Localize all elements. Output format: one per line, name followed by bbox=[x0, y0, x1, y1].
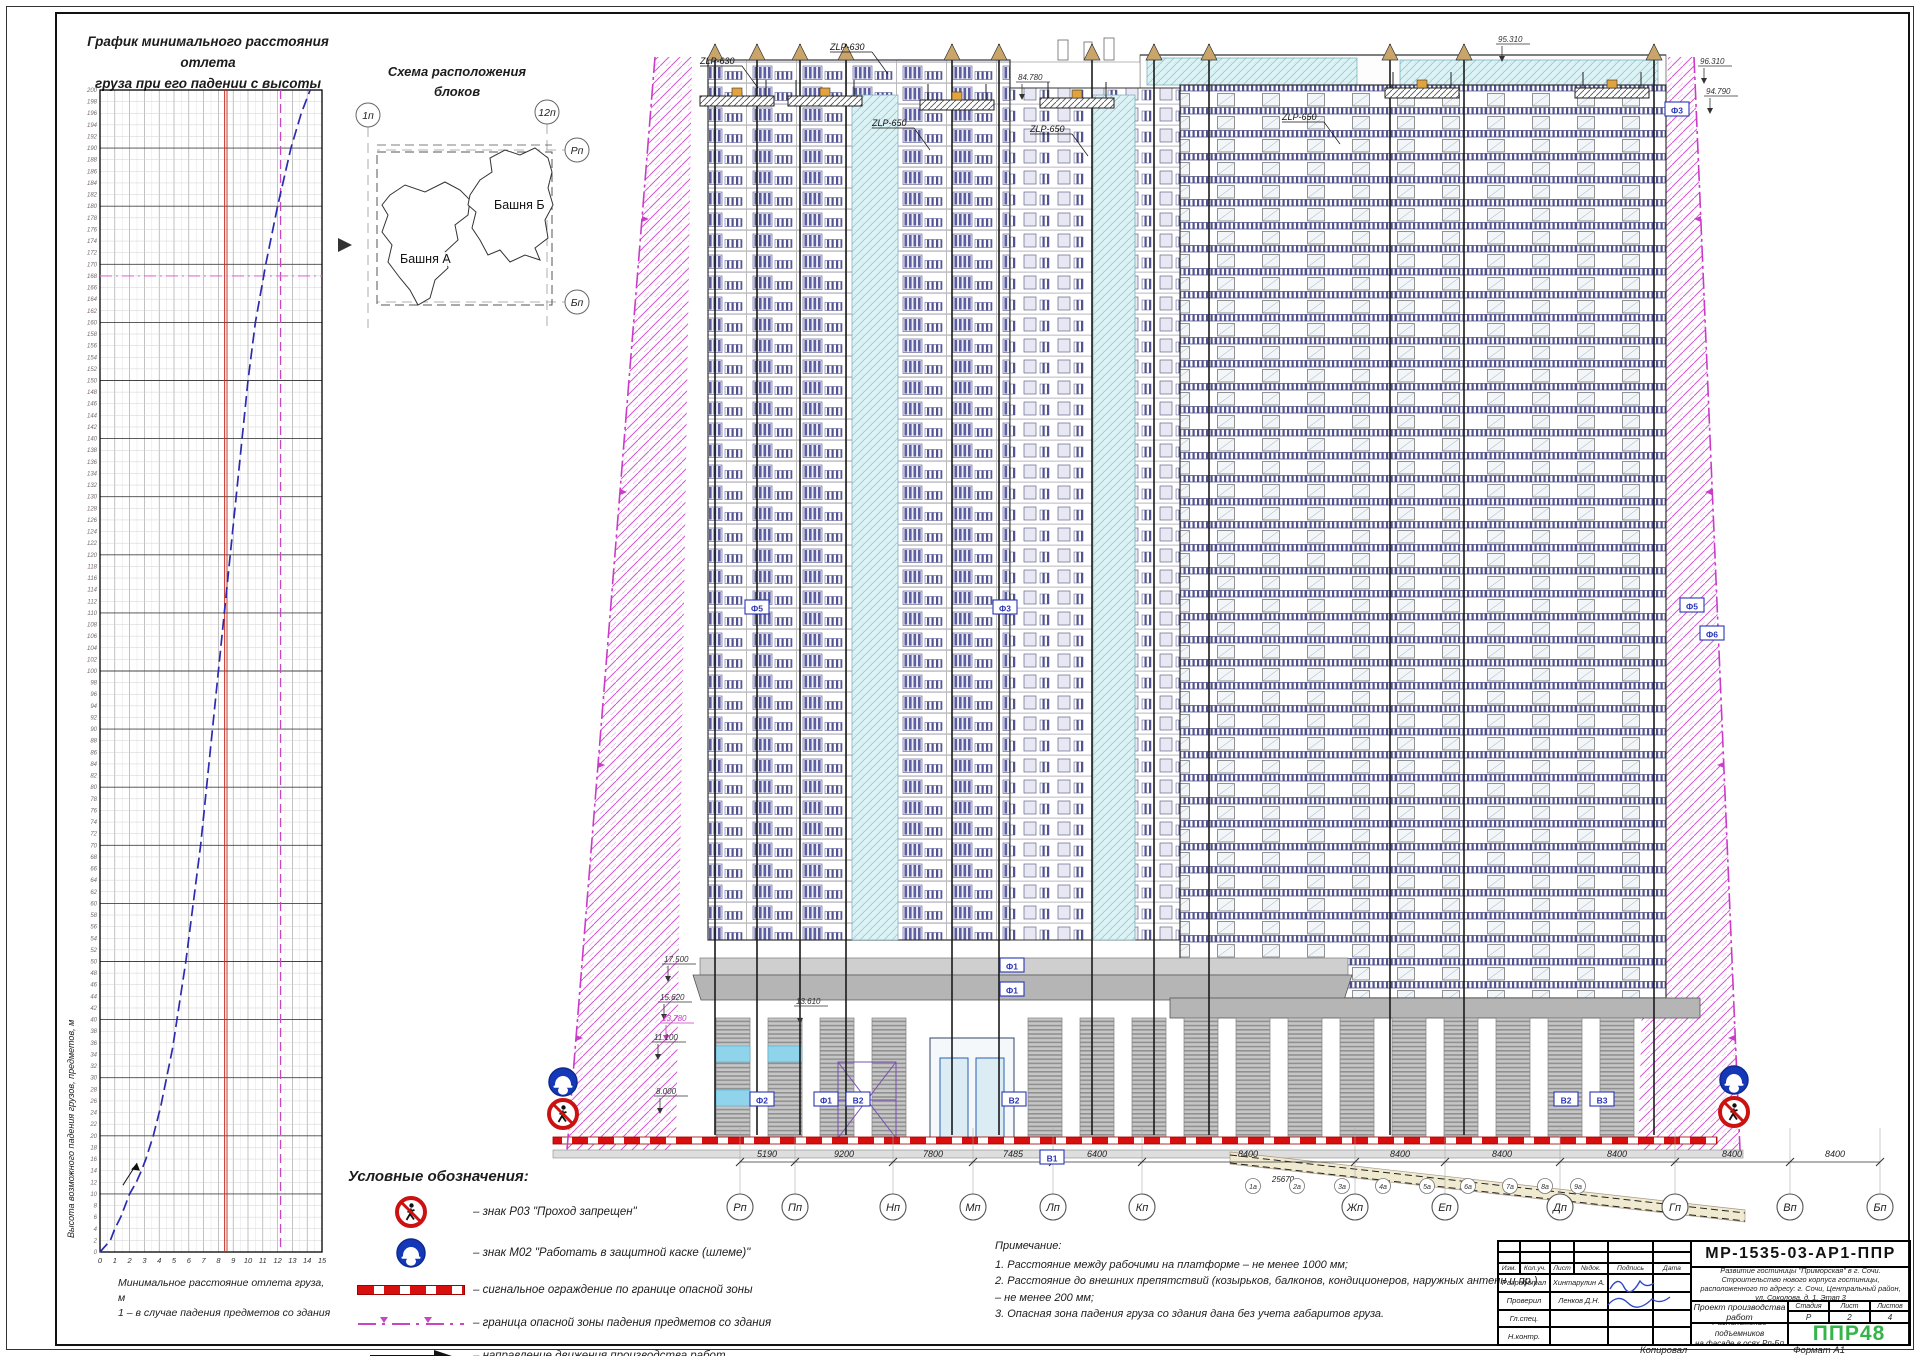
svg-text:Вп: Вп bbox=[1783, 1202, 1796, 1214]
direction-arrow-icon bbox=[348, 1350, 473, 1356]
svg-text:Ф1: Ф1 bbox=[1006, 962, 1018, 972]
svg-text:8400: 8400 bbox=[1607, 1149, 1627, 1159]
sheet-label: Лист bbox=[1829, 1301, 1870, 1311]
svg-text:В2: В2 bbox=[1009, 1096, 1020, 1106]
note-3: 3. Опасная зона падения груза со здания … bbox=[995, 1306, 1540, 1323]
svg-text:114: 114 bbox=[87, 588, 97, 594]
svg-text:Ф1: Ф1 bbox=[1006, 986, 1018, 996]
svg-text:7485: 7485 bbox=[1003, 1149, 1024, 1159]
svg-text:168: 168 bbox=[87, 274, 98, 280]
titleblock-cell bbox=[1653, 1241, 1691, 1252]
svg-text:80: 80 bbox=[90, 785, 97, 791]
svg-text:54: 54 bbox=[90, 936, 97, 942]
svg-text:92: 92 bbox=[90, 715, 97, 721]
scheme-axis-12p: 12п bbox=[538, 107, 556, 119]
svg-text:Мп: Мп bbox=[965, 1202, 980, 1214]
titleblock-cell bbox=[1608, 1327, 1653, 1345]
sheets-label: Листов bbox=[1870, 1301, 1910, 1311]
scheme-axis-1p: 1п bbox=[362, 110, 374, 122]
svg-text:30: 30 bbox=[90, 1076, 97, 1082]
svg-text:Ф3: Ф3 bbox=[1671, 106, 1683, 116]
svg-text:104: 104 bbox=[87, 646, 98, 652]
svg-text:5а: 5а bbox=[1423, 1184, 1431, 1191]
svg-text:124: 124 bbox=[87, 530, 98, 536]
svg-text:50: 50 bbox=[90, 960, 97, 966]
titleblock-cell bbox=[1608, 1241, 1653, 1252]
svg-text:96.310: 96.310 bbox=[1700, 57, 1725, 66]
svg-text:В2: В2 bbox=[853, 1096, 864, 1106]
svg-text:56: 56 bbox=[90, 925, 97, 931]
svg-text:116: 116 bbox=[87, 576, 97, 582]
svg-text:136: 136 bbox=[87, 460, 98, 466]
svg-text:4: 4 bbox=[94, 1227, 98, 1233]
fall-distance-chart: 0246810121416182022242628303234363840424… bbox=[60, 78, 340, 1278]
hard-hat-sign-icon bbox=[348, 1236, 473, 1270]
svg-text:6: 6 bbox=[94, 1215, 98, 1221]
danger-boundary-icon bbox=[348, 1317, 473, 1329]
svg-text:5190: 5190 bbox=[757, 1149, 777, 1159]
svg-text:142: 142 bbox=[87, 425, 98, 431]
svg-text:70: 70 bbox=[90, 843, 97, 849]
svg-text:8400: 8400 bbox=[1238, 1149, 1258, 1159]
svg-text:ZLP-650: ZLP-650 bbox=[871, 118, 907, 128]
svg-text:170: 170 bbox=[87, 262, 98, 268]
svg-text:2а: 2а bbox=[1292, 1184, 1301, 1191]
sheet-subject: Расположение подъемниковна фасаде в осях… bbox=[1691, 1323, 1788, 1345]
svg-text:100: 100 bbox=[87, 669, 98, 675]
titleblock-cell bbox=[1653, 1252, 1691, 1263]
no-pedestrian-sign-icon bbox=[348, 1195, 473, 1229]
chart-x-axis-caption: Минимальное расстояние отлета груза, м 1… bbox=[118, 1276, 333, 1322]
svg-text:46: 46 bbox=[90, 983, 97, 989]
svg-text:200: 200 bbox=[86, 88, 98, 94]
svg-text:184: 184 bbox=[87, 181, 98, 187]
note-1: 1. Расстояние между рабочими на платформ… bbox=[995, 1257, 1540, 1274]
no-pedestrian-sign bbox=[1720, 1098, 1748, 1126]
notes: Примечание: 1. Расстояние между рабочими… bbox=[995, 1238, 1540, 1323]
svg-text:140: 140 bbox=[87, 437, 98, 443]
svg-text:7: 7 bbox=[202, 1256, 207, 1265]
svg-text:ZLP-630: ZLP-630 bbox=[699, 56, 735, 66]
svg-text:90: 90 bbox=[90, 727, 97, 733]
svg-text:6: 6 bbox=[187, 1256, 192, 1265]
titleblock-cell bbox=[1520, 1252, 1550, 1263]
svg-text:Дп: Дп bbox=[1551, 1202, 1567, 1214]
copied-by-label: Копировал bbox=[1640, 1345, 1687, 1356]
svg-text:Гп: Гп bbox=[1669, 1202, 1681, 1214]
titleblock-cell bbox=[1574, 1241, 1608, 1252]
svg-text:152: 152 bbox=[87, 367, 98, 373]
svg-text:3а: 3а bbox=[1338, 1184, 1346, 1191]
svg-text:88: 88 bbox=[90, 739, 97, 745]
svg-text:154: 154 bbox=[87, 355, 98, 361]
titleblock-cell: Н.контр. bbox=[1498, 1327, 1550, 1345]
svg-text:194: 194 bbox=[87, 123, 98, 129]
titleblock-cell: Подпись bbox=[1608, 1263, 1653, 1274]
svg-text:В2: В2 bbox=[1561, 1096, 1572, 1106]
format-label: Формат А1 bbox=[1793, 1345, 1845, 1356]
svg-text:Ф5: Ф5 bbox=[751, 604, 763, 614]
svg-text:84.780: 84.780 bbox=[1018, 73, 1043, 82]
svg-text:58: 58 bbox=[90, 913, 97, 919]
scheme-axis-bp: Бп bbox=[571, 297, 584, 309]
titleblock-cell: №док. bbox=[1574, 1263, 1608, 1274]
svg-text:8400: 8400 bbox=[1722, 1149, 1742, 1159]
svg-text:144: 144 bbox=[87, 413, 98, 419]
legend-item-p03: – знак Р03 "Проход запрещен" bbox=[348, 1195, 818, 1229]
titleblock-cell bbox=[1653, 1274, 1691, 1292]
svg-text:118: 118 bbox=[87, 564, 97, 570]
svg-text:150: 150 bbox=[87, 379, 98, 385]
svg-text:2: 2 bbox=[127, 1256, 133, 1265]
svg-text:7800: 7800 bbox=[923, 1149, 943, 1159]
svg-text:22: 22 bbox=[89, 1122, 97, 1128]
svg-text:Еп: Еп bbox=[1438, 1202, 1451, 1214]
svg-text:12: 12 bbox=[90, 1180, 97, 1186]
svg-text:В3: В3 bbox=[1597, 1096, 1608, 1106]
svg-text:8: 8 bbox=[216, 1256, 221, 1265]
svg-text:6а: 6а bbox=[1464, 1184, 1472, 1191]
svg-text:106: 106 bbox=[87, 634, 98, 640]
titleblock-cell: Гл.спец. bbox=[1498, 1310, 1550, 1328]
svg-text:Лп: Лп bbox=[1045, 1202, 1060, 1214]
svg-text:128: 128 bbox=[87, 506, 98, 512]
svg-text:5: 5 bbox=[172, 1256, 177, 1265]
svg-text:Нп: Нп bbox=[886, 1202, 900, 1214]
svg-text:162: 162 bbox=[87, 309, 98, 315]
titleblock-cell: Проверил bbox=[1498, 1292, 1550, 1310]
hard-hat-sign bbox=[1720, 1066, 1748, 1094]
svg-text:126: 126 bbox=[87, 518, 98, 524]
signal-fence-line bbox=[553, 1137, 1717, 1144]
svg-text:38: 38 bbox=[90, 1029, 97, 1035]
tower-a-label: Башня А bbox=[398, 252, 453, 266]
company-logo: ППР48 bbox=[1788, 1323, 1910, 1345]
titleblock-cell bbox=[1608, 1310, 1653, 1328]
svg-text:10: 10 bbox=[90, 1192, 97, 1198]
svg-text:36: 36 bbox=[90, 1041, 97, 1047]
svg-text:196: 196 bbox=[87, 111, 98, 117]
document-title: Проект производства работ bbox=[1691, 1301, 1788, 1323]
svg-text:158: 158 bbox=[87, 332, 98, 338]
svg-text:16: 16 bbox=[90, 1157, 97, 1163]
svg-text:182: 182 bbox=[87, 193, 98, 199]
svg-text:13: 13 bbox=[288, 1256, 297, 1265]
title-block: МР-1535-03-АР1-ППР Развитие гостиницы "П… bbox=[1497, 1240, 1911, 1346]
svg-text:64: 64 bbox=[90, 878, 97, 884]
svg-text:166: 166 bbox=[87, 286, 98, 292]
note-2: 2. Расстояние до внешних препятствий (ко… bbox=[995, 1273, 1540, 1306]
svg-text:18: 18 bbox=[90, 1145, 97, 1151]
titleblock-cell bbox=[1574, 1252, 1608, 1263]
svg-text:186: 186 bbox=[87, 169, 98, 175]
titleblock-cell: Хинтарулин А. bbox=[1550, 1274, 1608, 1292]
svg-text:122: 122 bbox=[87, 541, 98, 547]
project-description: Развитие гостиницы "Приморская" в г. Соч… bbox=[1691, 1267, 1910, 1301]
svg-text:84: 84 bbox=[90, 762, 97, 768]
svg-text:164: 164 bbox=[87, 297, 98, 303]
svg-text:48: 48 bbox=[90, 971, 97, 977]
tower-a-outline bbox=[382, 182, 470, 305]
svg-text:146: 146 bbox=[87, 402, 98, 408]
titleblock-cell: Кол.уч. bbox=[1520, 1263, 1550, 1274]
svg-text:8400: 8400 bbox=[1492, 1149, 1512, 1159]
legend-item-m02: – знак М02 "Работать в защитной каске (ш… bbox=[348, 1236, 818, 1270]
svg-text:6400: 6400 bbox=[1087, 1149, 1107, 1159]
svg-text:34: 34 bbox=[90, 1052, 97, 1058]
legend: Условные обозначения: – знак Р03 "Проход… bbox=[348, 1168, 818, 1356]
svg-text:В1: В1 bbox=[1047, 1154, 1058, 1164]
stage-label: Стадия bbox=[1788, 1301, 1829, 1311]
scheme-axis-rp: Рп bbox=[571, 145, 584, 157]
no-pedestrian-sign bbox=[549, 1100, 577, 1128]
tower-b-label: Башня Б bbox=[492, 198, 547, 212]
svg-text:ZLP-650: ZLP-650 bbox=[1029, 124, 1065, 134]
titleblock-cell: Ленков Д.Н. bbox=[1550, 1292, 1608, 1310]
svg-text:188: 188 bbox=[87, 158, 98, 164]
svg-text:Ф2: Ф2 bbox=[756, 1096, 768, 1106]
svg-text:138: 138 bbox=[87, 448, 98, 454]
svg-text:4а: 4а bbox=[1379, 1184, 1387, 1191]
view-direction-arrow bbox=[338, 238, 352, 252]
titleblock-cell bbox=[1550, 1310, 1608, 1328]
svg-text:24: 24 bbox=[89, 1111, 97, 1117]
svg-text:Ф6: Ф6 bbox=[1706, 630, 1718, 640]
svg-text:134: 134 bbox=[87, 471, 98, 477]
svg-text:7а: 7а bbox=[1506, 1184, 1514, 1191]
signal-fence-icon bbox=[348, 1285, 473, 1295]
titleblock-cell: Изм. bbox=[1498, 1263, 1520, 1274]
svg-text:26: 26 bbox=[89, 1099, 97, 1105]
svg-text:20: 20 bbox=[89, 1134, 97, 1140]
svg-text:8400: 8400 bbox=[1390, 1149, 1410, 1159]
titleblock-cell bbox=[1653, 1310, 1691, 1328]
svg-text:130: 130 bbox=[87, 495, 98, 501]
svg-text:17.500: 17.500 bbox=[664, 955, 689, 964]
svg-text:9: 9 bbox=[231, 1256, 236, 1265]
svg-text:1: 1 bbox=[113, 1256, 117, 1265]
svg-text:94: 94 bbox=[90, 704, 97, 710]
svg-text:ZLP-650: ZLP-650 bbox=[1281, 112, 1317, 122]
block-layout-scheme: 1п 12п Рп Бп bbox=[332, 88, 602, 378]
svg-text:32: 32 bbox=[90, 1064, 97, 1070]
svg-text:110: 110 bbox=[87, 611, 97, 617]
hard-hat-sign bbox=[549, 1068, 577, 1096]
svg-text:148: 148 bbox=[87, 390, 98, 396]
sheet-value: 2 bbox=[1829, 1311, 1870, 1323]
titleblock-cell bbox=[1550, 1327, 1608, 1345]
legend-item-direction: – направление движения производства рабо… bbox=[348, 1343, 818, 1356]
svg-text:156: 156 bbox=[87, 344, 98, 350]
svg-text:8а: 8а bbox=[1541, 1184, 1549, 1191]
titleblock-cell bbox=[1653, 1327, 1691, 1345]
svg-text:Ф3: Ф3 bbox=[999, 604, 1011, 614]
svg-text:8: 8 bbox=[94, 1204, 98, 1210]
svg-text:190: 190 bbox=[87, 146, 98, 152]
svg-text:98: 98 bbox=[90, 681, 97, 687]
svg-text:68: 68 bbox=[90, 855, 97, 861]
svg-text:44: 44 bbox=[90, 994, 97, 1000]
titleblock-cell: Лист bbox=[1550, 1263, 1574, 1274]
titleblock-cell: Дата bbox=[1653, 1263, 1691, 1274]
titleblock-cell bbox=[1550, 1252, 1574, 1263]
svg-text:10: 10 bbox=[244, 1256, 253, 1265]
legend-item-boundary: – граница опасной зоны падения предметов… bbox=[348, 1310, 818, 1336]
legend-item-fence: – сигнальное ограждение по границе опасн… bbox=[348, 1277, 818, 1303]
svg-text:13.780: 13.780 bbox=[662, 1014, 687, 1023]
document-code: МР-1535-03-АР1-ППР bbox=[1691, 1241, 1910, 1267]
svg-text:60: 60 bbox=[90, 901, 97, 907]
chart-y-axis-label: Высота возможного падения грузов, предме… bbox=[66, 838, 76, 1238]
svg-text:66: 66 bbox=[90, 867, 97, 873]
svg-text:62: 62 bbox=[90, 890, 97, 896]
svg-text:Кп: Кп bbox=[1136, 1202, 1149, 1214]
svg-text:14: 14 bbox=[303, 1256, 311, 1265]
svg-text:52: 52 bbox=[90, 948, 97, 954]
svg-text:ZLP-630: ZLP-630 bbox=[829, 42, 865, 52]
titleblock-cell bbox=[1608, 1292, 1653, 1310]
titleblock-cell: Разработал bbox=[1498, 1274, 1550, 1292]
titleblock-cell bbox=[1653, 1292, 1691, 1310]
titleblock-cell bbox=[1520, 1241, 1550, 1252]
legend-heading: Условные обозначения: bbox=[348, 1168, 818, 1185]
svg-text:112: 112 bbox=[87, 599, 97, 605]
svg-text:78: 78 bbox=[90, 797, 97, 803]
svg-text:72: 72 bbox=[90, 832, 97, 838]
svg-text:76: 76 bbox=[90, 808, 97, 814]
svg-text:86: 86 bbox=[90, 750, 97, 756]
titleblock-cell bbox=[1550, 1241, 1574, 1252]
svg-text:Ф5: Ф5 bbox=[1686, 602, 1698, 612]
svg-text:132: 132 bbox=[87, 483, 98, 489]
drawing-sheet: ZLP-630ZLP-630ZLP-650ZLP-650ZLP-650РпПпН… bbox=[0, 0, 1920, 1356]
svg-text:12: 12 bbox=[273, 1256, 282, 1265]
notes-heading: Примечание: bbox=[995, 1238, 1540, 1255]
svg-text:Жп: Жп bbox=[1346, 1202, 1363, 1214]
svg-text:95.310: 95.310 bbox=[1498, 35, 1523, 44]
svg-text:15.620: 15.620 bbox=[660, 993, 685, 1002]
svg-text:160: 160 bbox=[87, 320, 98, 326]
chart-series-note: 1 – в случае падения предметов со здания bbox=[118, 1306, 333, 1321]
svg-text:3: 3 bbox=[142, 1256, 147, 1265]
chart-x-axis-label: Минимальное расстояние отлета груза, м bbox=[118, 1276, 333, 1306]
svg-text:0: 0 bbox=[98, 1256, 103, 1265]
svg-text:4: 4 bbox=[157, 1256, 161, 1265]
svg-text:9200: 9200 bbox=[834, 1149, 854, 1159]
svg-text:82: 82 bbox=[90, 774, 97, 780]
svg-text:192: 192 bbox=[87, 134, 98, 140]
svg-text:9а: 9а bbox=[1574, 1184, 1582, 1191]
titleblock-cell bbox=[1498, 1241, 1520, 1252]
svg-text:28: 28 bbox=[89, 1087, 97, 1093]
stage-value: Р bbox=[1788, 1311, 1829, 1323]
svg-text:120: 120 bbox=[87, 553, 98, 559]
svg-text:172: 172 bbox=[87, 251, 98, 257]
svg-text:11: 11 bbox=[259, 1256, 267, 1265]
svg-text:42: 42 bbox=[90, 1006, 97, 1012]
svg-text:15: 15 bbox=[318, 1256, 327, 1265]
svg-text:1а: 1а bbox=[1249, 1184, 1257, 1191]
svg-text:40: 40 bbox=[90, 1018, 97, 1024]
svg-text:108: 108 bbox=[87, 623, 98, 629]
titleblock-cell bbox=[1498, 1252, 1520, 1263]
svg-text:13.610: 13.610 bbox=[796, 997, 821, 1006]
building-facades bbox=[708, 38, 1666, 998]
svg-text:2: 2 bbox=[93, 1238, 98, 1244]
titleblock-cell bbox=[1608, 1274, 1653, 1292]
svg-text:178: 178 bbox=[87, 216, 98, 222]
svg-text:102: 102 bbox=[87, 657, 98, 663]
titleblock-cell bbox=[1608, 1252, 1653, 1263]
svg-text:180: 180 bbox=[87, 204, 98, 210]
svg-text:174: 174 bbox=[87, 239, 98, 245]
svg-text:8.000: 8.000 bbox=[656, 1087, 677, 1096]
svg-text:74: 74 bbox=[90, 820, 97, 826]
svg-text:Бп: Бп bbox=[1873, 1202, 1886, 1214]
sheets-value: 4 bbox=[1870, 1311, 1910, 1323]
svg-text:Ф1: Ф1 bbox=[820, 1096, 832, 1106]
svg-text:14: 14 bbox=[90, 1169, 97, 1175]
svg-text:8400: 8400 bbox=[1825, 1149, 1845, 1159]
svg-text:11.100: 11.100 bbox=[654, 1033, 678, 1042]
svg-text:94.790: 94.790 bbox=[1706, 87, 1731, 96]
svg-text:96: 96 bbox=[90, 692, 97, 698]
svg-text:198: 198 bbox=[87, 100, 98, 106]
svg-text:176: 176 bbox=[87, 227, 98, 233]
